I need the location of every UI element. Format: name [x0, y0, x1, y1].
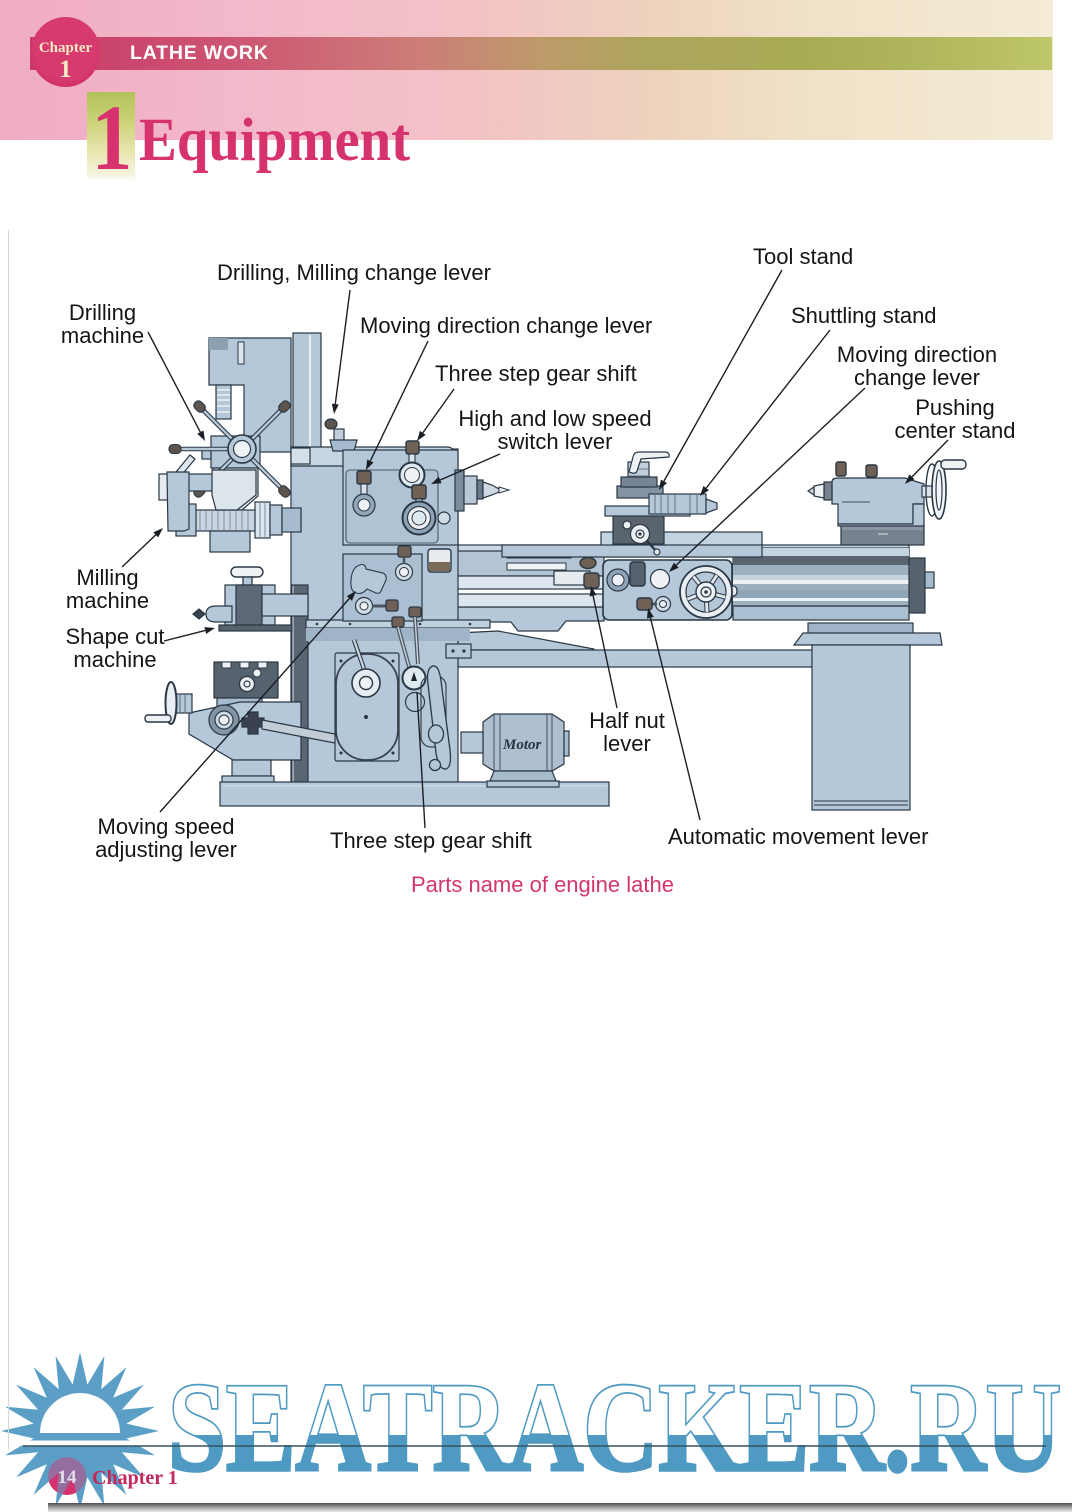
svg-text:Chapter 1: Chapter 1 — [92, 1467, 178, 1489]
svg-text:14: 14 — [58, 1467, 78, 1488]
svg-text:Motor: Motor — [502, 737, 542, 753]
